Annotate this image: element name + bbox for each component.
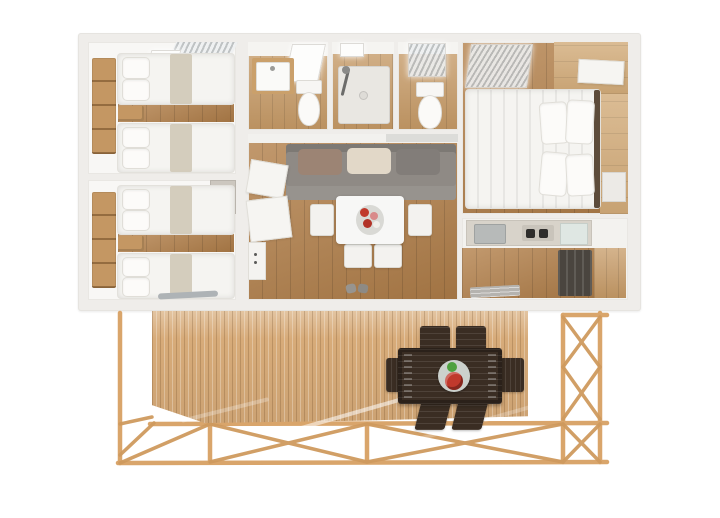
fruit-plate	[438, 360, 470, 392]
pillow	[122, 210, 150, 231]
dining-chair	[374, 244, 402, 268]
nightstand	[118, 106, 144, 121]
countertop	[466, 220, 592, 246]
window-ledge	[386, 134, 458, 142]
shower-drain	[359, 91, 368, 100]
room-master-bedroom	[462, 42, 628, 214]
tomatoes	[445, 372, 463, 390]
wardrobe-top	[554, 42, 628, 94]
pillow	[565, 99, 595, 144]
room-living-dining	[248, 134, 458, 300]
folded-throw	[158, 290, 218, 299]
pillow	[565, 153, 595, 196]
washbasin	[256, 62, 290, 91]
pillow	[122, 257, 150, 277]
wall-shelf	[92, 192, 116, 288]
cushion-cream	[347, 148, 391, 174]
room-bedroom-left-bottom	[88, 180, 236, 300]
dining-table	[336, 196, 404, 244]
pillow	[122, 57, 150, 79]
pillow	[122, 189, 150, 210]
faucet	[270, 66, 275, 71]
room-bathroom	[248, 42, 328, 130]
red-flower	[360, 208, 369, 217]
bed-runner	[170, 124, 192, 172]
wardrobe-white-panel	[602, 172, 626, 202]
bed-runner	[170, 186, 192, 234]
burner	[539, 229, 548, 238]
table-lattice-edge	[488, 354, 496, 398]
open-wardrobe-door	[577, 59, 624, 85]
shoe	[345, 283, 357, 294]
burner	[526, 229, 535, 238]
table-lattice-edge	[404, 354, 412, 398]
white-flower	[373, 221, 380, 228]
outdoor-chair-right	[500, 358, 524, 392]
kitchen-sink	[474, 224, 506, 244]
wall-shelf	[92, 58, 116, 154]
pink-flower	[370, 212, 378, 220]
room-wc	[398, 42, 458, 130]
nightstand	[118, 236, 144, 251]
handle	[254, 253, 257, 256]
pillow	[122, 127, 150, 148]
skylight-window-blinds	[408, 43, 446, 77]
pillow	[122, 277, 150, 297]
shoe	[357, 283, 368, 293]
shower-mixer	[342, 66, 350, 74]
cooktop	[522, 225, 554, 241]
sofa	[286, 144, 456, 200]
room-kitchen	[462, 218, 628, 300]
single-bed	[118, 186, 234, 234]
skylight-window	[340, 43, 364, 57]
unit-outer-shell	[78, 33, 641, 311]
single-bed	[118, 124, 234, 172]
red-flower	[363, 219, 372, 228]
room-bedroom-left-top	[88, 42, 236, 174]
open-door	[245, 159, 288, 199]
pillow	[122, 148, 150, 169]
wardrobe-side	[600, 94, 628, 214]
double-bed	[466, 90, 600, 208]
single-bed	[118, 54, 234, 104]
outdoor-dining-table	[398, 348, 502, 404]
pillow	[122, 79, 150, 101]
dining-chair	[344, 244, 372, 268]
room-shower	[332, 42, 394, 130]
glass-cabinet	[560, 223, 588, 245]
tall-cabinet	[248, 242, 266, 280]
toilet-bowl	[298, 92, 320, 126]
green-apple	[447, 362, 457, 372]
floorplan-render-scene	[0, 0, 720, 518]
dining-chair	[408, 204, 432, 236]
single-bed	[118, 254, 234, 298]
bed-runner	[170, 54, 192, 104]
toilet-bowl	[418, 95, 442, 129]
open-door	[246, 196, 293, 243]
fridge	[558, 250, 592, 296]
cushion-taupe	[298, 149, 342, 175]
window-blinds	[465, 44, 533, 88]
headboard	[594, 90, 600, 208]
kitchen-cabinet	[594, 248, 626, 298]
handle	[254, 261, 257, 264]
cushion-gray	[396, 149, 440, 175]
dining-chair	[310, 204, 334, 236]
